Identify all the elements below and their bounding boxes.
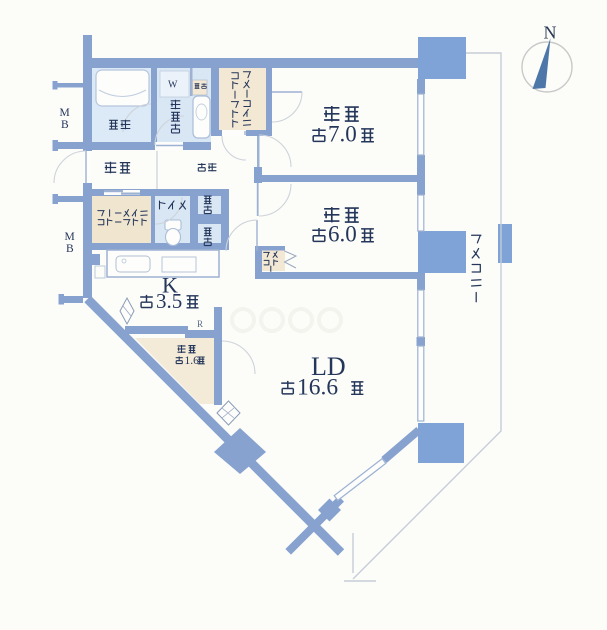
svg-text:6.0: 6.0 [328,222,357,247]
svg-text:M: M [65,231,75,243]
svg-text:3.5: 3.5 [156,289,182,313]
svg-text:7.0: 7.0 [328,122,357,147]
svg-text:1.6: 1.6 [185,355,200,367]
svg-text:W: W [168,80,178,91]
svg-text:B: B [61,119,69,131]
svg-text:R: R [197,319,203,329]
svg-text:M: M [60,107,70,119]
svg-text:B: B [66,243,74,255]
svg-text:16.6: 16.6 [297,375,338,401]
svg-text:N: N [544,23,557,43]
